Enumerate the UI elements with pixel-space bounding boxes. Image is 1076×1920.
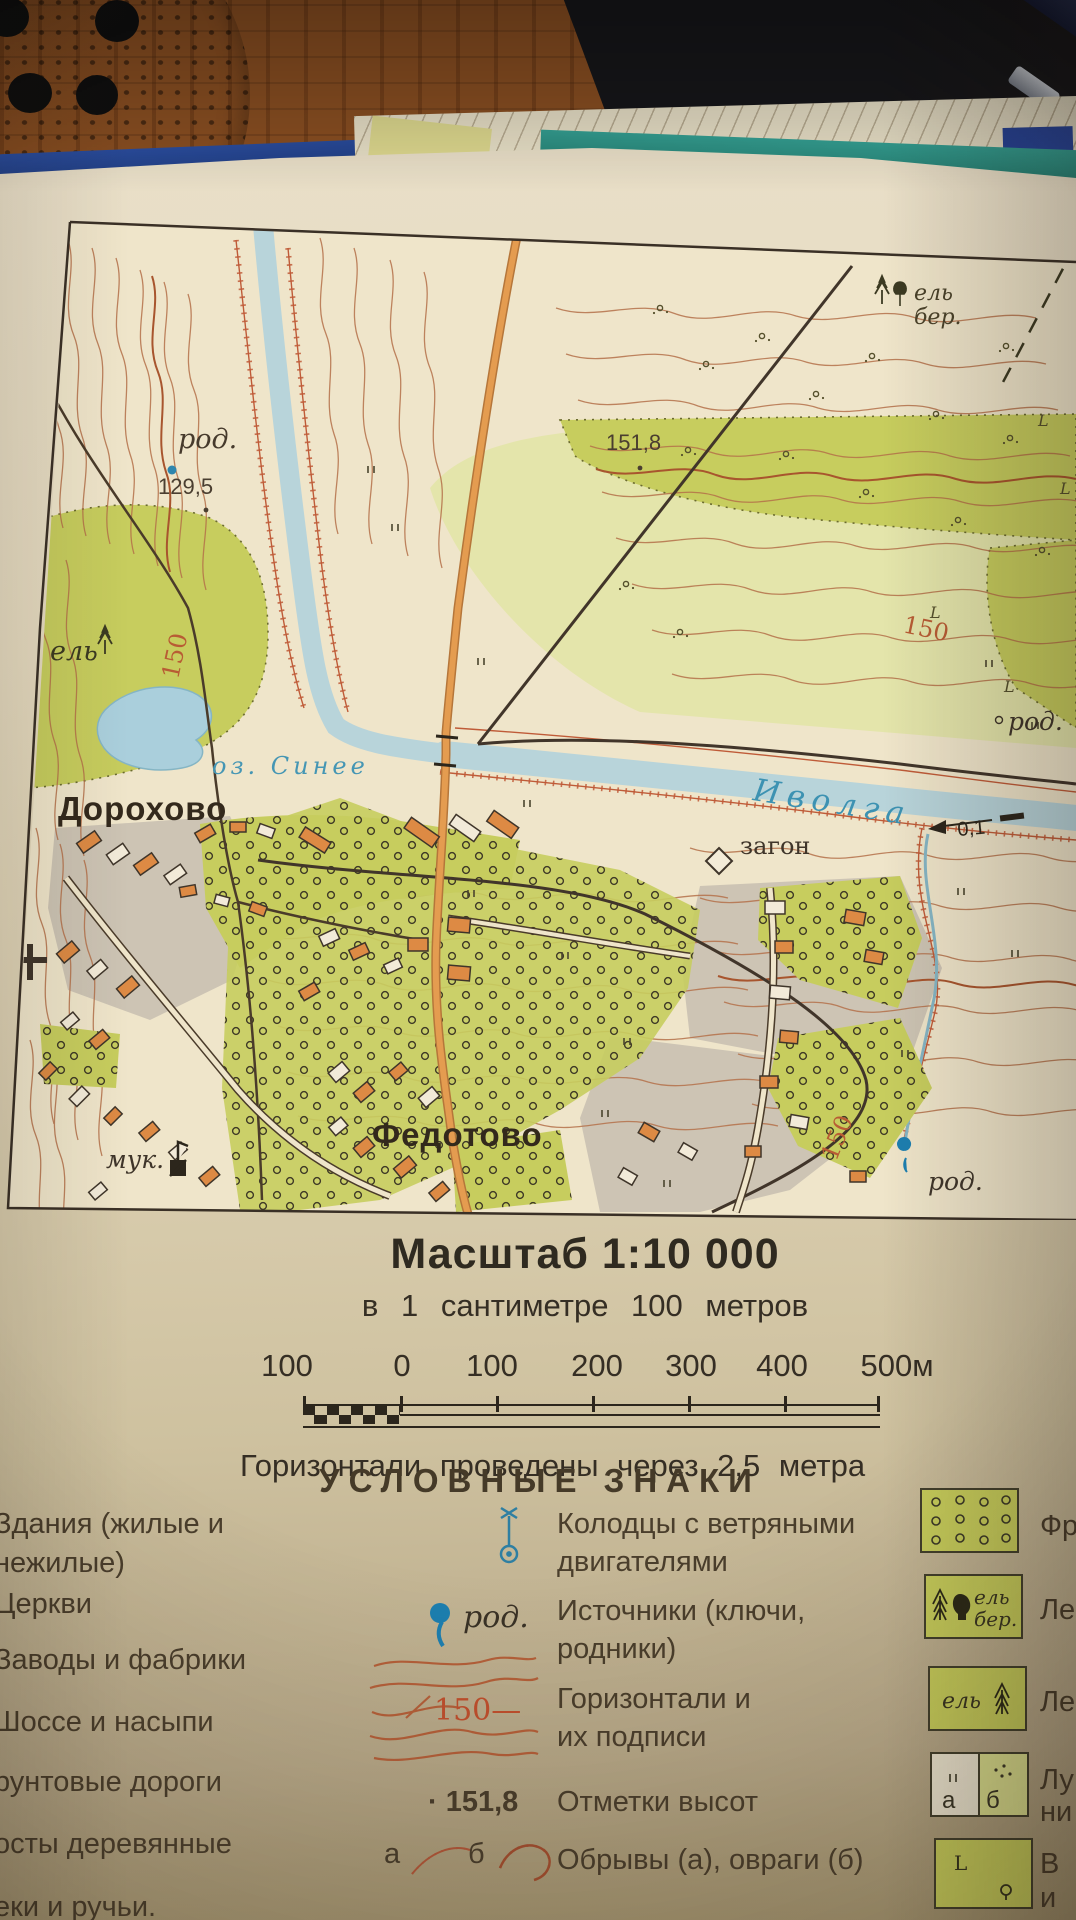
forest-label-tr2: бер. — [914, 305, 962, 330]
meadow-swatch: а б — [930, 1752, 1030, 1818]
scale-title: Масштаб 1:10 000 — [190, 1230, 980, 1279]
svg-text:L: L — [1003, 677, 1015, 696]
orchard-swatch — [920, 1488, 1020, 1554]
lake-label: оз. Синее — [212, 752, 369, 780]
spring-icon-label: род. — [463, 1600, 529, 1635]
spring-label-right: род. — [1008, 707, 1063, 736]
atlas-page: LLL LLL — [0, 148, 1076, 1920]
legend-item-buildings-2: нежилые) — [0, 1547, 125, 1580]
legend-item-clearings-line1: В — [1040, 1848, 1059, 1881]
disc-hole — [8, 73, 52, 113]
legend-item-heights: Отметки высот — [557, 1786, 758, 1819]
spruce-forest-swatch: ель — [928, 1666, 1028, 1732]
disc-hole — [0, 0, 29, 37]
scale-bar-label: 100 — [466, 1348, 518, 1384]
meadow-label-a: а — [942, 1787, 956, 1814]
scale-bar-label: 400 — [756, 1348, 808, 1384]
legend-item-clearings-line2: и — [1040, 1882, 1056, 1915]
legend-item-highways: Шоссе и насыпи — [0, 1706, 214, 1739]
legend-item-meadows-line1: Лу — [1040, 1764, 1074, 1797]
village-label-dorokhovo: Дорохово — [58, 790, 227, 827]
legend-item-contours-line2: их подписи — [557, 1721, 706, 1754]
spruce-forest-label: ель — [942, 1689, 981, 1714]
spot-height-label: 151,8 — [606, 430, 661, 455]
disc-hole — [76, 75, 118, 115]
legend-item-cliffs: Обрывы (а), овраги (б) — [557, 1844, 864, 1877]
scale-subtitle: в 1 сантиметре 100 метров — [190, 1288, 980, 1324]
flow-speed-label: 0,1 — [957, 817, 987, 841]
photo-of-topographic-map-page: н — [0, 0, 1076, 1920]
spot-height-icon: · 151,8 — [428, 1786, 518, 1819]
legend-item-wooden-bridges: осты деревянные — [0, 1828, 232, 1861]
scale-bar-label: 300 — [665, 1348, 717, 1384]
svg-text:L: L — [1007, 221, 1019, 240]
contours-icon-label: 150— — [434, 1693, 521, 1728]
forest-label-tr1: ель — [914, 281, 953, 306]
legend-item-buildings: Здания (жилые и — [0, 1508, 224, 1541]
mixed-forest-label1: ель — [974, 1585, 1009, 1609]
spot-height-label: 129,5 — [158, 474, 213, 499]
legend-title: УСЛОВНЫЕ ЗНАКИ — [170, 1462, 910, 1500]
disc-hole — [95, 0, 139, 42]
meadow-label-b: б — [986, 1787, 1000, 1814]
mixed-forest-swatch: ель бер. — [924, 1574, 1024, 1640]
shrub-swatch: L — [934, 1838, 1034, 1910]
legend-item-mixed-forest: Ле — [1040, 1594, 1075, 1627]
scale-bar-label: 0 — [393, 1348, 410, 1384]
spring-label-top: род. — [178, 424, 237, 455]
legend-item-springs-line1: Источники (ключи, — [557, 1595, 805, 1628]
topographic-map: LLL LLL — [0, 188, 1076, 1220]
legend-item-rivers: еки и ручьи. — [0, 1891, 156, 1920]
forest-label-left: ель — [50, 636, 98, 667]
svg-text:L: L — [1037, 411, 1049, 430]
cliff-label-a: а — [384, 1838, 400, 1871]
legend-item-wells-line2: двигателями — [557, 1546, 728, 1579]
scale-bar-label: 500м — [860, 1348, 933, 1384]
spring-label-bottom: род. — [928, 1167, 983, 1196]
legend-item-springs-line2: родники) — [557, 1633, 676, 1666]
legend-item-wells-line1: Колодцы с ветряными — [557, 1508, 855, 1541]
scale-bar-label: 200 — [571, 1348, 623, 1384]
mixed-forest-label2: бер. — [974, 1607, 1017, 1631]
legend-item-meadows-line2: ни — [1040, 1796, 1072, 1829]
legend-item-orchards: Фр — [1040, 1510, 1076, 1543]
legend-item-spruce-forest: Ле — [1040, 1686, 1075, 1719]
legend-item-churches: Церкви — [0, 1588, 92, 1621]
contours-icon: 150— — [368, 1648, 540, 1766]
cliff-label-b: б — [468, 1838, 485, 1871]
pen-label: загон — [740, 832, 810, 860]
legend-item-factories: Заводы и фабрики — [0, 1644, 246, 1677]
scale-bar-label: 100 — [261, 1348, 313, 1384]
svg-text:L: L — [1057, 237, 1069, 256]
legend-item-contours-line1: Горизонтали и — [557, 1683, 751, 1716]
scale-bar — [303, 1404, 880, 1428]
well-windmill-icon — [492, 1504, 526, 1566]
mill-label: мук. — [106, 1145, 164, 1174]
svg-text:L: L — [954, 1851, 967, 1875]
legend-item-dirt-roads: рунтовые дороги — [0, 1766, 222, 1799]
village-label-fedotovo: Федотово — [372, 1116, 543, 1153]
svg-text:L: L — [1059, 479, 1071, 498]
